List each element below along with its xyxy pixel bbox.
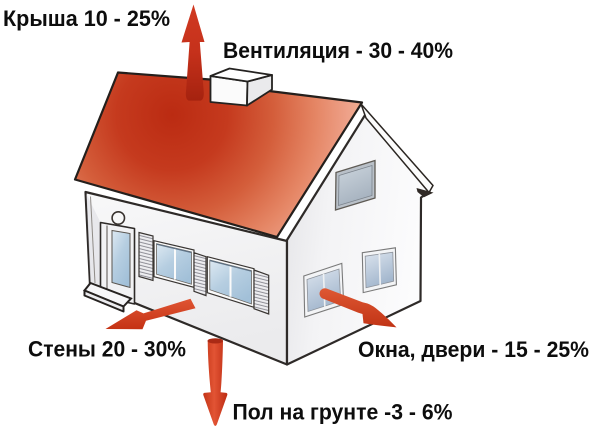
svg-text:Стены 20 - 30%: Стены 20 - 30% bbox=[28, 337, 186, 362]
svg-text:Вентиляция - 30 - 40%: Вентиляция - 30 - 40% bbox=[223, 38, 453, 63]
svg-text:Пол на грунте -3 - 6%: Пол на грунте -3 - 6% bbox=[233, 400, 453, 425]
svg-text:Окна, двери - 15 - 25%: Окна, двери - 15 - 25% bbox=[358, 337, 589, 362]
svg-text:Крыша 10 - 25%: Крыша 10 - 25% bbox=[3, 6, 170, 31]
